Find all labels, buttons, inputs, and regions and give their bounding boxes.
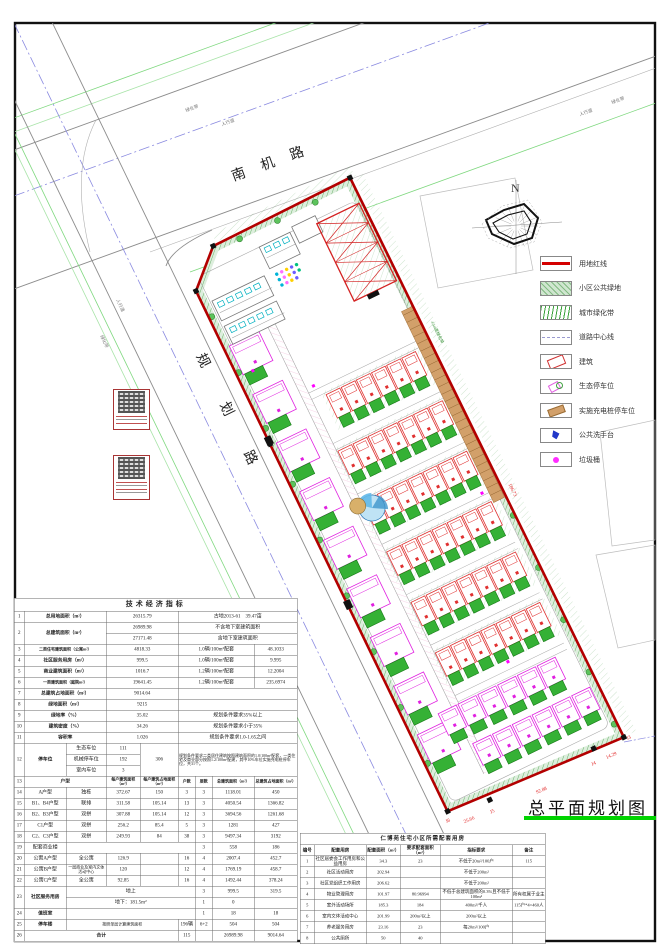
table-cell: 建筑密度（%） xyxy=(24,721,106,732)
table-cell: 规划条件要求1.0-1.65之间 xyxy=(178,732,297,743)
table-cell: 容积率 xyxy=(24,732,106,743)
table-cell: 3694.56 xyxy=(212,809,254,820)
table-cell xyxy=(178,688,297,699)
table-cell: 双拼 xyxy=(66,820,106,831)
table-cell: 4050.54 xyxy=(212,798,254,809)
table-cell: 105.14 xyxy=(140,809,178,820)
legend-label: 公共洗手台 xyxy=(579,430,614,440)
table-cell: 92.85 xyxy=(106,875,140,886)
red-line-swatch xyxy=(540,256,572,271)
table-cell: 0 xyxy=(212,897,254,908)
table-cell: 含地下室建筑面积 xyxy=(178,633,297,644)
table-cell: 要求配套面积（m²） xyxy=(400,845,440,856)
charging-parking-swatch xyxy=(540,403,572,418)
svg-text:25.66: 25.66 xyxy=(463,816,476,825)
legend-label: 小区公共绿地 xyxy=(579,283,621,293)
table-cell: 2 xyxy=(300,867,314,878)
table-cell: 每户建筑面积（m²） xyxy=(106,776,140,787)
table-cell: 6 xyxy=(300,911,314,922)
table-cell: 150 xyxy=(140,787,178,798)
table-cell: 200m²以上 xyxy=(400,911,440,922)
table-cell: 5 xyxy=(14,666,24,677)
road-label-top: 南机路 xyxy=(229,138,322,185)
table-cell xyxy=(178,699,297,710)
table-cell: 6+2 xyxy=(195,919,212,930)
table-cell: 115 xyxy=(512,856,545,867)
table-cell: 3 xyxy=(178,787,195,798)
table-cell: 18 xyxy=(14,831,24,842)
table-cell: 生态车位 xyxy=(66,743,106,754)
public-green-swatch xyxy=(540,281,572,296)
table-cell: 311.58 xyxy=(106,798,140,809)
table-cell: 不低于200m² xyxy=(440,878,512,889)
table-cell: 每20m²/100户 xyxy=(440,922,512,933)
table-cell: 18 xyxy=(254,908,297,919)
table-cell: 所有权属于业主 xyxy=(512,889,545,900)
legend: 用地红线 小区公共绿地 城市绿化带 道路中心线 建筑 生态停车位 实施充电桩停车… xyxy=(540,256,635,477)
table-cell: 1 xyxy=(195,908,212,919)
table-cell: 3 xyxy=(195,886,212,897)
table-cell: 38 xyxy=(178,831,195,842)
table-cell: 25 xyxy=(14,919,24,930)
table-cell: 户型 xyxy=(24,776,106,787)
table-cell: 公寓A户型 xyxy=(24,853,66,864)
drawing-sheet: 南机路 规划路 绿化带 人行道 人行道 绿化带 人行道 绿化带 xyxy=(0,0,670,948)
table-cell: 8 xyxy=(300,933,314,944)
table-cell: 999.5 xyxy=(212,886,254,897)
table-cell: B1、B4户型 xyxy=(24,798,66,809)
table-cell: 4 xyxy=(195,875,212,886)
table-cell: 999.5 xyxy=(106,655,178,666)
road-sublabel: 人行道 xyxy=(220,117,236,128)
table-cell: 4 xyxy=(300,889,314,900)
table-cell: 室外活动场所 xyxy=(314,900,366,911)
table-cell: 全公寓 xyxy=(66,875,106,886)
table-cell: 3 xyxy=(195,831,212,842)
legend-item: 小区公共绿地 xyxy=(540,281,635,296)
table-cell: 9.995 xyxy=(254,655,297,666)
table-cell: 机械停车位 xyxy=(66,754,106,765)
svg-text:J5: J5 xyxy=(490,809,497,816)
table-cell: 户数 xyxy=(178,776,195,787)
table-cell: 26 xyxy=(14,930,24,941)
table-cell: 84 xyxy=(140,831,178,842)
legend-label: 建筑 xyxy=(579,357,593,367)
table-cell xyxy=(512,867,545,878)
table-cell: 不低于总建筑面积的0.3%且不低于100m² xyxy=(440,889,512,900)
table-cell: 按照单层计算建筑面积 xyxy=(66,919,178,930)
table-cell: 80.96994 xyxy=(400,889,440,900)
table-cell: 504 xyxy=(212,919,254,930)
table-cell: C1户型 xyxy=(24,820,66,831)
table-cell: 公寓C户型 xyxy=(24,875,66,886)
trash-bin-swatch xyxy=(540,452,572,467)
table-cell: 1 xyxy=(14,611,24,622)
table-cell xyxy=(512,933,545,944)
table-cell xyxy=(512,922,545,933)
table-cell: 绿地率（%） xyxy=(24,710,106,721)
table-cell: 319.5 xyxy=(254,886,297,897)
table-cell: B2、B3户型 xyxy=(24,809,66,820)
table-cell: 1261.68 xyxy=(254,809,297,820)
table-cell: 社区居委会工作用房和公益用房 xyxy=(314,856,366,867)
table-cell: 12.2004 xyxy=(254,666,297,677)
table-cell: 15 xyxy=(14,798,24,809)
qr-stamp xyxy=(113,389,150,430)
table-cell: 4818.33 xyxy=(106,644,178,655)
table-cell xyxy=(254,897,297,908)
table-cell: 养老服务用房 xyxy=(314,922,366,933)
table-cell: 115 xyxy=(178,930,195,941)
legend-item: 城市绿化带 xyxy=(540,305,635,320)
compass-spoke xyxy=(518,231,525,247)
title-underline xyxy=(524,816,656,820)
table-cell: 备注 xyxy=(512,845,545,856)
table-cell: 23 xyxy=(400,856,440,867)
table-cell: 2 xyxy=(14,622,24,644)
table-cell xyxy=(512,878,545,889)
table-cell: 独栋 xyxy=(66,787,106,798)
table-cell: 201.99 xyxy=(366,911,400,922)
table-cell: 1.0辆/100m²配套 xyxy=(178,655,254,666)
table-cell: 层数 xyxy=(195,776,212,787)
table-cell xyxy=(400,878,440,889)
table-cell: 1.026 xyxy=(106,732,178,743)
table-cell: 编号 xyxy=(300,845,314,856)
table-cell: 社区党组织工作用房 xyxy=(314,878,366,889)
table-cell: 1366.82 xyxy=(254,798,297,809)
table-cell: 不含地下室建筑面积 xyxy=(178,622,297,633)
table-cell: 全公寓 xyxy=(66,853,106,864)
legend-label: 道路中心线 xyxy=(579,332,614,342)
table-cell: 256.2 xyxy=(106,820,140,831)
table-cell: 室内车位 xyxy=(66,765,106,776)
table-cell: 总建筑面积（m²） xyxy=(212,776,254,787)
table-cell: 一类建筑面积（庭院m²） xyxy=(24,677,106,688)
table-cell: 27171.48 xyxy=(106,633,178,644)
table-cell: 不低于200m² xyxy=(440,867,512,878)
table-cell xyxy=(400,867,440,878)
table-cell: 值班室 xyxy=(24,908,66,919)
table-cell xyxy=(140,875,178,886)
table-cell: 3 xyxy=(106,765,140,776)
table-cell: 4 xyxy=(195,853,212,864)
table-cell: 总用地面积（m²） xyxy=(24,611,106,622)
table-cell: 12 xyxy=(14,743,24,776)
road-sublabel: 绿化带 xyxy=(184,103,200,114)
table-cell: 一层商业及室内文体活动中心 xyxy=(66,864,106,875)
table-cell: 1281 xyxy=(212,820,254,831)
table-cell: 规划条件要求小于35% xyxy=(178,721,297,732)
table-cell xyxy=(512,911,545,922)
svg-text:N: N xyxy=(511,181,520,195)
table-cell: 22 xyxy=(14,875,24,886)
table-cell: 23 xyxy=(400,922,440,933)
legend-item: 实施充电桩停车位 xyxy=(540,403,635,418)
table-cell: 1 xyxy=(300,856,314,867)
table-cell: 21 xyxy=(14,864,24,875)
table-cell: 427 xyxy=(254,820,297,831)
table-cell: 185.3 xyxy=(366,900,400,911)
corner-marker xyxy=(486,797,493,804)
table-cell: 1.2辆/100m²配套 xyxy=(178,677,254,688)
table-cell: 120 xyxy=(106,864,140,875)
table-cell: 4 xyxy=(195,864,212,875)
table-cell: 235.6974 xyxy=(254,677,297,688)
table-cell: 绿地面积（m²） xyxy=(24,699,106,710)
table-cell: 4 xyxy=(14,655,24,666)
table-cell: 26989.98 xyxy=(212,930,254,941)
table-cell: 126.9 xyxy=(106,853,140,864)
table-cell: 每户建筑占地面积（m²） xyxy=(140,776,178,787)
legend-label: 用地红线 xyxy=(579,259,607,269)
table-cell: 3 xyxy=(14,644,24,655)
table-cell: 85.4 xyxy=(140,820,178,831)
table-cell: 社区活动用房 xyxy=(314,867,366,878)
table-cell: 16 xyxy=(178,853,195,864)
table-cell: 指标要求 xyxy=(440,845,512,856)
table-cell: 双拼 xyxy=(66,831,106,842)
table-cell: 12 xyxy=(178,864,195,875)
table-cell: 7 xyxy=(300,922,314,933)
table-cell: 5 xyxy=(300,900,314,911)
table-cell: 307.88 xyxy=(106,809,140,820)
svg-text:14.29: 14.29 xyxy=(605,752,618,761)
table-cell: 二类住宅建筑面积（公寓m²） xyxy=(24,644,106,655)
table-cell: 3 xyxy=(195,809,212,820)
table-cell: 23.16 xyxy=(366,922,400,933)
table-cell: 372.67 xyxy=(106,787,140,798)
table-cell xyxy=(66,908,195,919)
table-cell: 306 xyxy=(140,743,178,776)
table-cell: 101.97 xyxy=(366,889,400,900)
table-cell: 115户*4=460人 xyxy=(512,900,545,911)
legend-item: 用地红线 xyxy=(540,256,635,271)
table-cell xyxy=(140,864,178,875)
table-cell: 16 xyxy=(14,809,24,820)
table-cell: 452.7 xyxy=(254,853,297,864)
table-cell: 9497.34 xyxy=(212,831,254,842)
table-cell: 196辆 xyxy=(178,919,195,930)
legend-item: 建筑 xyxy=(540,354,635,369)
table-cell: 商业建筑面积（m²） xyxy=(24,666,106,677)
table-cell: 5 xyxy=(178,820,195,831)
table-cell xyxy=(440,933,512,944)
table-cell: 8 xyxy=(14,699,24,710)
table-cell: 古地2013-61 39.47亩 xyxy=(178,611,297,622)
table-cell: 558 xyxy=(212,842,254,853)
table-cell: 24 xyxy=(14,908,24,919)
table-cell: 规划条件要求二类居住建筑按照建筑面积的1.0/100m²配套，一类住宅及商业部分… xyxy=(178,743,297,776)
table-cell: 458.7 xyxy=(254,864,297,875)
table-cell: 34.3 xyxy=(366,856,400,867)
table-cell: 192 xyxy=(106,754,140,765)
table-cell: A户型 xyxy=(24,787,66,798)
table-cell: 公共厕所 xyxy=(314,933,366,944)
legend-label: 实施充电桩停车位 xyxy=(579,406,635,416)
table-cell xyxy=(140,853,178,864)
table-cell: 3 xyxy=(300,878,314,889)
table-cell: 26315.79 xyxy=(106,611,178,622)
table-cell: 111 xyxy=(106,743,140,754)
table-cell: 13 xyxy=(178,798,195,809)
table-cell: 停车楼 xyxy=(24,919,66,930)
table-cell: 双拼 xyxy=(66,809,106,820)
table-cell: 仁博苑住宅小区所需配套用房 xyxy=(300,833,545,845)
table-cell: 配套面积（m²） xyxy=(366,845,400,856)
table-cell: 105.14 xyxy=(140,798,178,809)
table-cell: C2、C3户型 xyxy=(24,831,66,842)
table-cell: 9014.64 xyxy=(254,930,297,941)
table-cell: 20 xyxy=(14,853,24,864)
table-cell: 186 xyxy=(254,842,297,853)
table-cell: 48.1033 xyxy=(254,644,297,655)
table-cell: 3 xyxy=(195,798,212,809)
table-cell: 50 xyxy=(366,933,400,944)
table-cell: 总建筑占地面积（m²） xyxy=(254,776,297,787)
table-cell: 18 xyxy=(212,908,254,919)
road-sublabel: 绿化带 xyxy=(98,334,110,350)
table-cell: 17 xyxy=(14,820,24,831)
road-centerline-swatch xyxy=(540,330,572,345)
legend-label: 城市绿化带 xyxy=(579,308,614,318)
table-cell: 19641.45 xyxy=(106,677,178,688)
qr-code xyxy=(118,391,145,413)
qr-code xyxy=(118,457,145,479)
table-cell: 停车位 xyxy=(24,743,66,776)
table-cell: 12 xyxy=(178,809,195,820)
indicators-table: 技术经济指标1总用地面积（m²）26315.79古地2013-61 39.47亩… xyxy=(14,598,297,942)
table-cell: 3 xyxy=(195,820,212,831)
table-cell: 合计 xyxy=(24,930,178,941)
table-cell: 206.62 xyxy=(366,878,400,889)
table-cell: 9014.64 xyxy=(106,688,178,699)
legend-label: 垃圾桶 xyxy=(579,455,600,465)
table-cell: 200m²以上 xyxy=(440,911,512,922)
legend-item: 公共洗手台 xyxy=(540,428,635,443)
svg-text:J6: J6 xyxy=(445,818,452,825)
table-cell: 2007.4 xyxy=(212,853,254,864)
table-cell: 地下：181.5m² xyxy=(66,897,195,908)
table-cell: 3192 xyxy=(254,831,297,842)
table-cell: 40 xyxy=(400,933,440,944)
table-cell: 配套商业楼 xyxy=(24,842,66,853)
table-cell: 16 xyxy=(178,875,195,886)
table-cell: 10 xyxy=(14,721,24,732)
svg-text:J4: J4 xyxy=(591,761,598,768)
table-cell: 450 xyxy=(254,787,297,798)
table-cell: 1 xyxy=(195,897,212,908)
eco-parking-swatch xyxy=(540,379,572,394)
table-cell: 总建筑占地面积（m²） xyxy=(24,688,106,699)
table-cell: 6 xyxy=(14,677,24,688)
table-cell: 3 xyxy=(195,787,212,798)
road-sublabel: 绿化带 xyxy=(610,95,626,106)
city-greenbelt-swatch xyxy=(540,305,572,320)
table-cell: 公寓B户型 xyxy=(24,864,66,875)
table-cell xyxy=(195,930,212,941)
tree xyxy=(198,253,206,261)
table-cell: 184 xyxy=(400,900,440,911)
table-cell: 13 xyxy=(14,776,24,787)
table-cell: 7 xyxy=(14,688,24,699)
table-cell: 1492.44 xyxy=(212,875,254,886)
table-cell: 35.02 xyxy=(106,710,178,721)
table-cell: 社区服务用房（m²） xyxy=(24,655,106,666)
legend-item: 道路中心线 xyxy=(540,330,635,345)
legend-label: 生态停车位 xyxy=(579,381,614,391)
table-cell: 联排 xyxy=(66,798,106,809)
table-cell: 社区服务用房 xyxy=(24,886,66,908)
table-cell: 地上 xyxy=(66,886,195,897)
table-cell: 19 xyxy=(14,842,24,853)
legend-item: 垃圾桶 xyxy=(540,452,635,467)
table-cell: 378.24 xyxy=(254,875,297,886)
table-cell: 9215 xyxy=(106,699,178,710)
wash-station-swatch xyxy=(540,428,572,443)
table-cell: 1118.01 xyxy=(212,787,254,798)
table-cell: 26989.98 xyxy=(106,622,178,633)
table-cell: 504 xyxy=(254,919,297,930)
table-cell: 11 xyxy=(14,732,24,743)
table-cell: 不低于20m²/100户 xyxy=(440,856,512,867)
table-cell: 34.26 xyxy=(106,721,178,732)
table-cell: 202.94 xyxy=(366,867,400,878)
table-cell: 物业管理用房 xyxy=(314,889,366,900)
support-rooms-table: 仁博苑住宅小区所需配套用房编号配套用房配套面积（m²）要求配套面积（m²）指标要… xyxy=(300,833,545,942)
table-cell: 总建筑面积（m²） xyxy=(24,622,106,644)
table-cell: 技术经济指标 xyxy=(14,598,297,611)
qr-stamp xyxy=(113,455,150,500)
table-cell: 3 xyxy=(195,842,212,853)
table-cell: 规划条件要求35%以上 xyxy=(178,710,297,721)
table-cell: 14 xyxy=(14,787,24,798)
table-cell: 1.0辆/100m²配套 xyxy=(178,644,254,655)
table-cell: 400m²/千人 xyxy=(440,900,512,911)
table-cell: 室内文体活动中心 xyxy=(314,911,366,922)
table-cell: 配套用房 xyxy=(314,845,366,856)
road-sublabel: 人行道 xyxy=(578,107,594,118)
table-cell: 9 xyxy=(14,710,24,721)
legend-item: 生态停车位 xyxy=(540,379,635,394)
table-cell: 1769.19 xyxy=(212,864,254,875)
table-cell: 1.2辆/100m²配套 xyxy=(178,666,254,677)
building-swatch xyxy=(540,354,572,369)
table-cell: 249.93 xyxy=(106,831,140,842)
table-cell xyxy=(66,842,195,853)
table-cell: 23 xyxy=(14,886,24,908)
compass-spoke xyxy=(500,210,512,222)
table-cell: 1016.7 xyxy=(106,666,178,677)
